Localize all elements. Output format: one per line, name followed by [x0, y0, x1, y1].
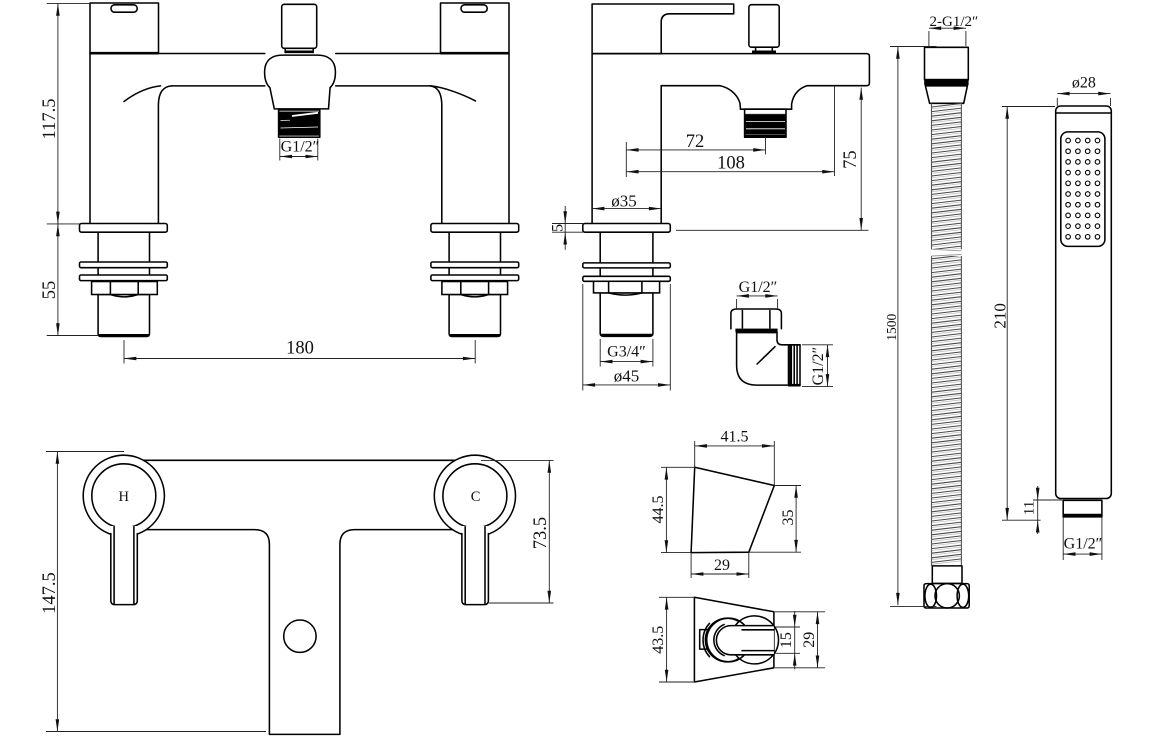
svg-text:75: 75: [841, 150, 861, 169]
svg-text:G1/2″: G1/2″: [739, 279, 778, 296]
svg-text:55: 55: [40, 281, 60, 300]
svg-text:43.5: 43.5: [650, 626, 667, 654]
svg-text:G1/2″: G1/2″: [1064, 536, 1103, 553]
svg-text:35: 35: [780, 510, 797, 526]
svg-text:1500: 1500: [884, 314, 899, 341]
svg-text:29: 29: [714, 557, 730, 574]
svg-text:108: 108: [717, 154, 745, 174]
svg-text:G3/4″: G3/4″: [607, 343, 646, 360]
svg-text:C: C: [471, 489, 481, 505]
svg-text:G1/2″: G1/2″: [810, 347, 827, 386]
svg-text:ø28: ø28: [1072, 75, 1096, 92]
svg-text:147.5: 147.5: [40, 572, 60, 614]
svg-text:44.5: 44.5: [650, 496, 667, 524]
svg-text:15: 15: [778, 632, 795, 648]
svg-text:11: 11: [1022, 501, 1038, 515]
svg-text:ø45: ø45: [614, 366, 640, 385]
svg-text:2-G1/2″: 2-G1/2″: [930, 14, 979, 30]
svg-text:180: 180: [286, 339, 314, 359]
svg-text:73.5: 73.5: [531, 517, 551, 549]
svg-text:ø35: ø35: [611, 191, 637, 210]
svg-text:5: 5: [550, 224, 567, 232]
svg-text:117.5: 117.5: [40, 99, 60, 140]
svg-text:H: H: [119, 489, 130, 505]
svg-text:72: 72: [686, 132, 705, 152]
svg-text:29: 29: [801, 632, 818, 648]
svg-text:210: 210: [991, 303, 1010, 329]
svg-text:G1/2″: G1/2″: [281, 139, 320, 156]
svg-text:41.5: 41.5: [721, 429, 749, 446]
